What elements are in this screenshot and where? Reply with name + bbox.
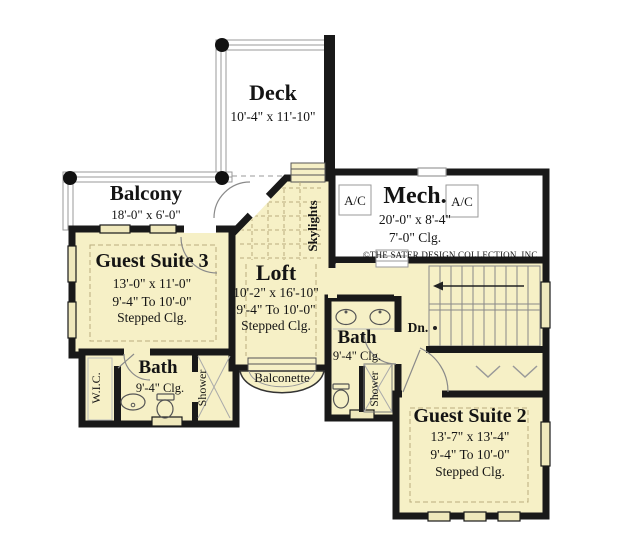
- door-arc: [214, 182, 250, 218]
- loft-label: Loft: [256, 260, 297, 285]
- column-icon: [63, 171, 77, 185]
- mech-vent: [418, 168, 446, 176]
- corridor: [336, 263, 396, 298]
- stair-wall: [426, 346, 546, 353]
- column-icon: [215, 171, 229, 185]
- window: [100, 225, 130, 233]
- shower-mid-label: Shower: [369, 371, 381, 406]
- deck-wall: [324, 35, 335, 180]
- ac-right-label: A/C: [451, 194, 473, 209]
- guest-suite-3-dims: 13'-0" x 11'-0": [113, 276, 191, 291]
- window: [150, 225, 176, 233]
- guest-suite-3-ceiling-range: 9'-4" To 10'-0": [112, 294, 191, 309]
- window: [464, 512, 486, 521]
- down-label: Dn.: [408, 320, 429, 335]
- guest-suite-2-label: Guest Suite 2: [413, 405, 526, 427]
- guest-suite-3-room: [72, 229, 236, 355]
- balconette-label: Balconette: [254, 370, 310, 385]
- mech-ceiling: 7'-0" Clg.: [389, 230, 441, 245]
- loft-dims: 10'-2" x 16'-10": [233, 285, 319, 300]
- loft-ceiling-range: 9'-4" To 10'-0": [236, 302, 315, 317]
- window: [68, 302, 76, 338]
- skylights-label: Skylights: [305, 200, 320, 251]
- wic-wall: [114, 366, 121, 424]
- copyright-label: ©THE SATER DESIGN COLLECTION, INC.: [363, 250, 540, 260]
- shower-wall: [192, 352, 198, 372]
- column-icon: [215, 38, 229, 52]
- window: [541, 282, 550, 328]
- bath-mid-label: Bath: [337, 327, 377, 348]
- deck-dims: 10'-4" x 11'-10": [230, 109, 315, 124]
- guest-suite-2-ceiling-type: Stepped Clg.: [435, 464, 505, 479]
- wic-label: W.I.C.: [89, 372, 103, 403]
- guest-suite-2-dims: 13'-7" x 13'-4": [431, 429, 510, 444]
- ac-left-label: A/C: [344, 193, 366, 208]
- deck-steps: [291, 163, 325, 182]
- loft-ceiling-type: Stepped Clg.: [241, 318, 311, 333]
- guest-suite-3-ceiling-type: Stepped Clg.: [117, 310, 187, 325]
- bath-left-label: Bath: [138, 357, 178, 378]
- mech-dims: 20'-0" x 8'-4": [379, 212, 451, 227]
- window: [68, 246, 76, 282]
- guest-suite-2-ceiling-range: 9'-4" To 10'-0": [430, 447, 509, 462]
- mech-label: Mech.: [383, 183, 446, 209]
- floor-plan: Deck 10'-4" x 11'-10" Balcony 18'-0" x 6…: [0, 0, 640, 547]
- down-marker-dot: [433, 326, 437, 330]
- window: [498, 512, 520, 521]
- bath-left-ceiling: 9'-4" Clg.: [136, 381, 184, 395]
- balcony-label: Balcony: [110, 181, 183, 205]
- deck-label: Deck: [249, 80, 297, 105]
- floor-plan-canvas: Deck 10'-4" x 11'-10" Balcony 18'-0" x 6…: [0, 0, 640, 547]
- bath-mid-ceiling: 9'-4" Clg.: [333, 349, 381, 363]
- guest-suite-3-label: Guest Suite 3: [95, 250, 208, 272]
- window: [428, 512, 450, 521]
- shower-left-label: Shower: [195, 370, 209, 407]
- columns: [63, 38, 229, 185]
- window: [541, 422, 550, 466]
- balcony-dims: 18'-0" x 6'-0": [111, 207, 180, 222]
